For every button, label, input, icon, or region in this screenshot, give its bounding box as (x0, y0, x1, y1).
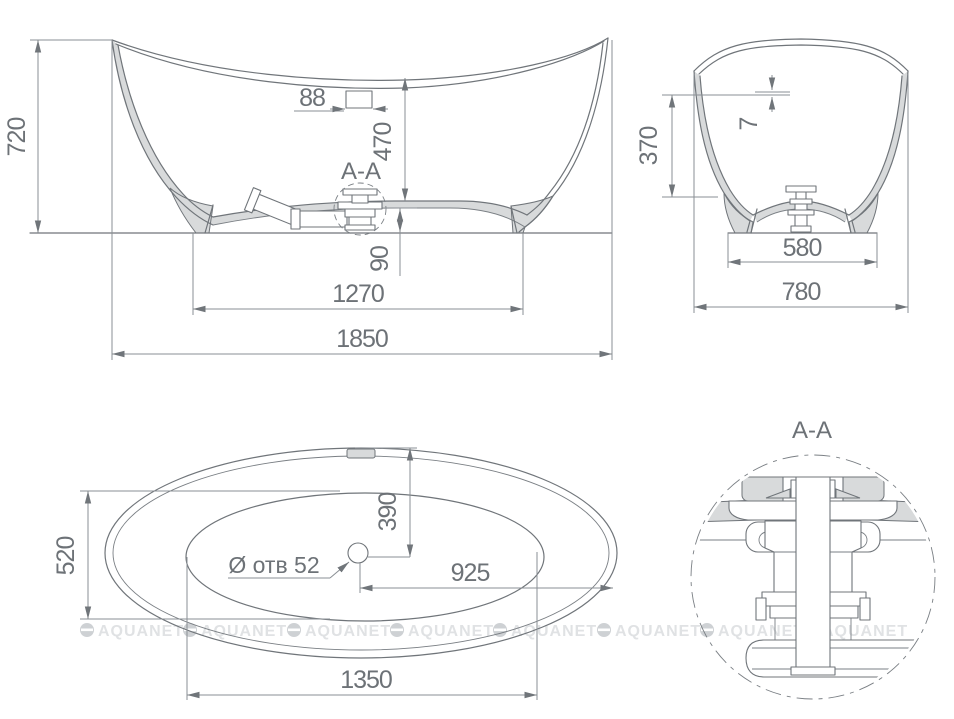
front-right-wall-inner (527, 43, 603, 215)
aquanet-logo-slit (494, 629, 506, 632)
dim-overall-height: 720 (3, 118, 31, 157)
detail-content (691, 477, 935, 677)
dim-drain-to-end: 925 (451, 559, 490, 587)
nut-tab-left (756, 598, 766, 620)
watermark-text: AQUANET (511, 623, 597, 640)
drawing-canvas: AQUANETAQUANETAQUANETAQUANETAQUANETAQUAN… (0, 0, 954, 719)
dim-base-length: 1270 (332, 280, 384, 308)
leader-arrow (330, 562, 349, 578)
waste-pipe-section (746, 640, 935, 677)
aquanet-logo-slit (288, 629, 300, 632)
aquanet-logo-slit (81, 629, 93, 632)
drain-cap (791, 226, 811, 232)
dim-overall-width: 780 (782, 278, 821, 306)
drain-flange (790, 199, 812, 204)
watermark-text: AQUANET (98, 623, 184, 640)
watermark-text: AQUANET (615, 623, 701, 640)
overflow-slot-front (346, 91, 372, 108)
dim-rim-to-bottom: 470 (369, 123, 397, 162)
watermark-item: AQUANET (597, 623, 701, 640)
drain-stem (796, 477, 830, 673)
nut-tab-right (860, 598, 870, 620)
drain-cap (345, 225, 375, 230)
watermark-item: AQUANET (80, 623, 184, 640)
aquanet-logo-slit (391, 629, 403, 632)
drain-hole (348, 543, 368, 563)
drain-tailpiece (349, 217, 371, 225)
overflow-slot-plan (347, 449, 375, 458)
dim-overall-length: 1850 (336, 325, 388, 353)
drain-plug-stem (352, 195, 368, 203)
dim-drain-to-side: 390 (374, 493, 402, 532)
aquanet-logo-slit (598, 629, 610, 632)
front-view: 720 88 470 A-A 90 1270 1850 (3, 38, 612, 360)
detail-title: A-A (792, 417, 832, 444)
dim-interior-depth: 370 (635, 127, 663, 166)
front-left-wall-inner (118, 45, 213, 217)
end-section-view: 370 7 580 780 (635, 39, 908, 313)
dim-base-width: 580 (783, 234, 822, 262)
end-rim-inner (699, 45, 903, 74)
watermark-item: AQUANET (390, 623, 494, 640)
watermark-row: AQUANETAQUANETAQUANETAQUANETAQUANETAQUAN… (80, 623, 908, 640)
dim-rim-edge-thickness: 7 (735, 117, 763, 130)
drain-hole-label: Ø отв 52 (228, 552, 319, 578)
dim-drain-outlet-height: 90 (366, 246, 394, 272)
bathtub-technical-drawing: AQUANETAQUANETAQUANETAQUANETAQUANETAQUAN… (0, 0, 954, 719)
plan-view: 520 390 Ø отв 52 925 1350 (52, 448, 617, 700)
dim-interior-length: 1350 (340, 666, 392, 694)
front-rim-outer (112, 38, 608, 80)
waste-pipe-joint (291, 209, 300, 229)
detail-view: A-A (691, 417, 935, 699)
end-right-shell-fill (849, 71, 908, 221)
front-rim-inner (116, 41, 604, 88)
drain-plug-stem (796, 192, 806, 199)
end-dimensions: 370 7 580 780 (635, 74, 908, 313)
plan-dimensions: 520 390 Ø отв 52 925 1350 (52, 448, 613, 700)
drain-locknut (345, 209, 375, 217)
front-dimensions: 720 88 470 A-A 90 1270 1850 (3, 40, 612, 360)
watermark-text: AQUANET (718, 623, 804, 640)
drain-stem-foot (791, 667, 835, 675)
end-left-shell-fill (694, 71, 753, 221)
dim-overflow-width: 88 (299, 84, 325, 112)
drain-plug-top (343, 189, 377, 195)
watermark-text: AQUANET (305, 623, 391, 640)
drain-locknut (788, 210, 814, 215)
watermark-item: AQUANET (700, 623, 804, 640)
dim-interior-width: 520 (52, 537, 80, 576)
watermark-text: AQUANET (822, 623, 908, 640)
watermark-item: AQUANET (287, 623, 391, 640)
section-label-front: A-A (341, 158, 381, 185)
waste-pipe-horizontal (299, 211, 347, 227)
front-right-foot (511, 196, 553, 233)
front-left-shell-fill (112, 40, 213, 225)
drain-plug-top (786, 186, 816, 192)
watermark-item: AQUANET (183, 623, 287, 640)
front-left-wall-outer (112, 40, 213, 225)
